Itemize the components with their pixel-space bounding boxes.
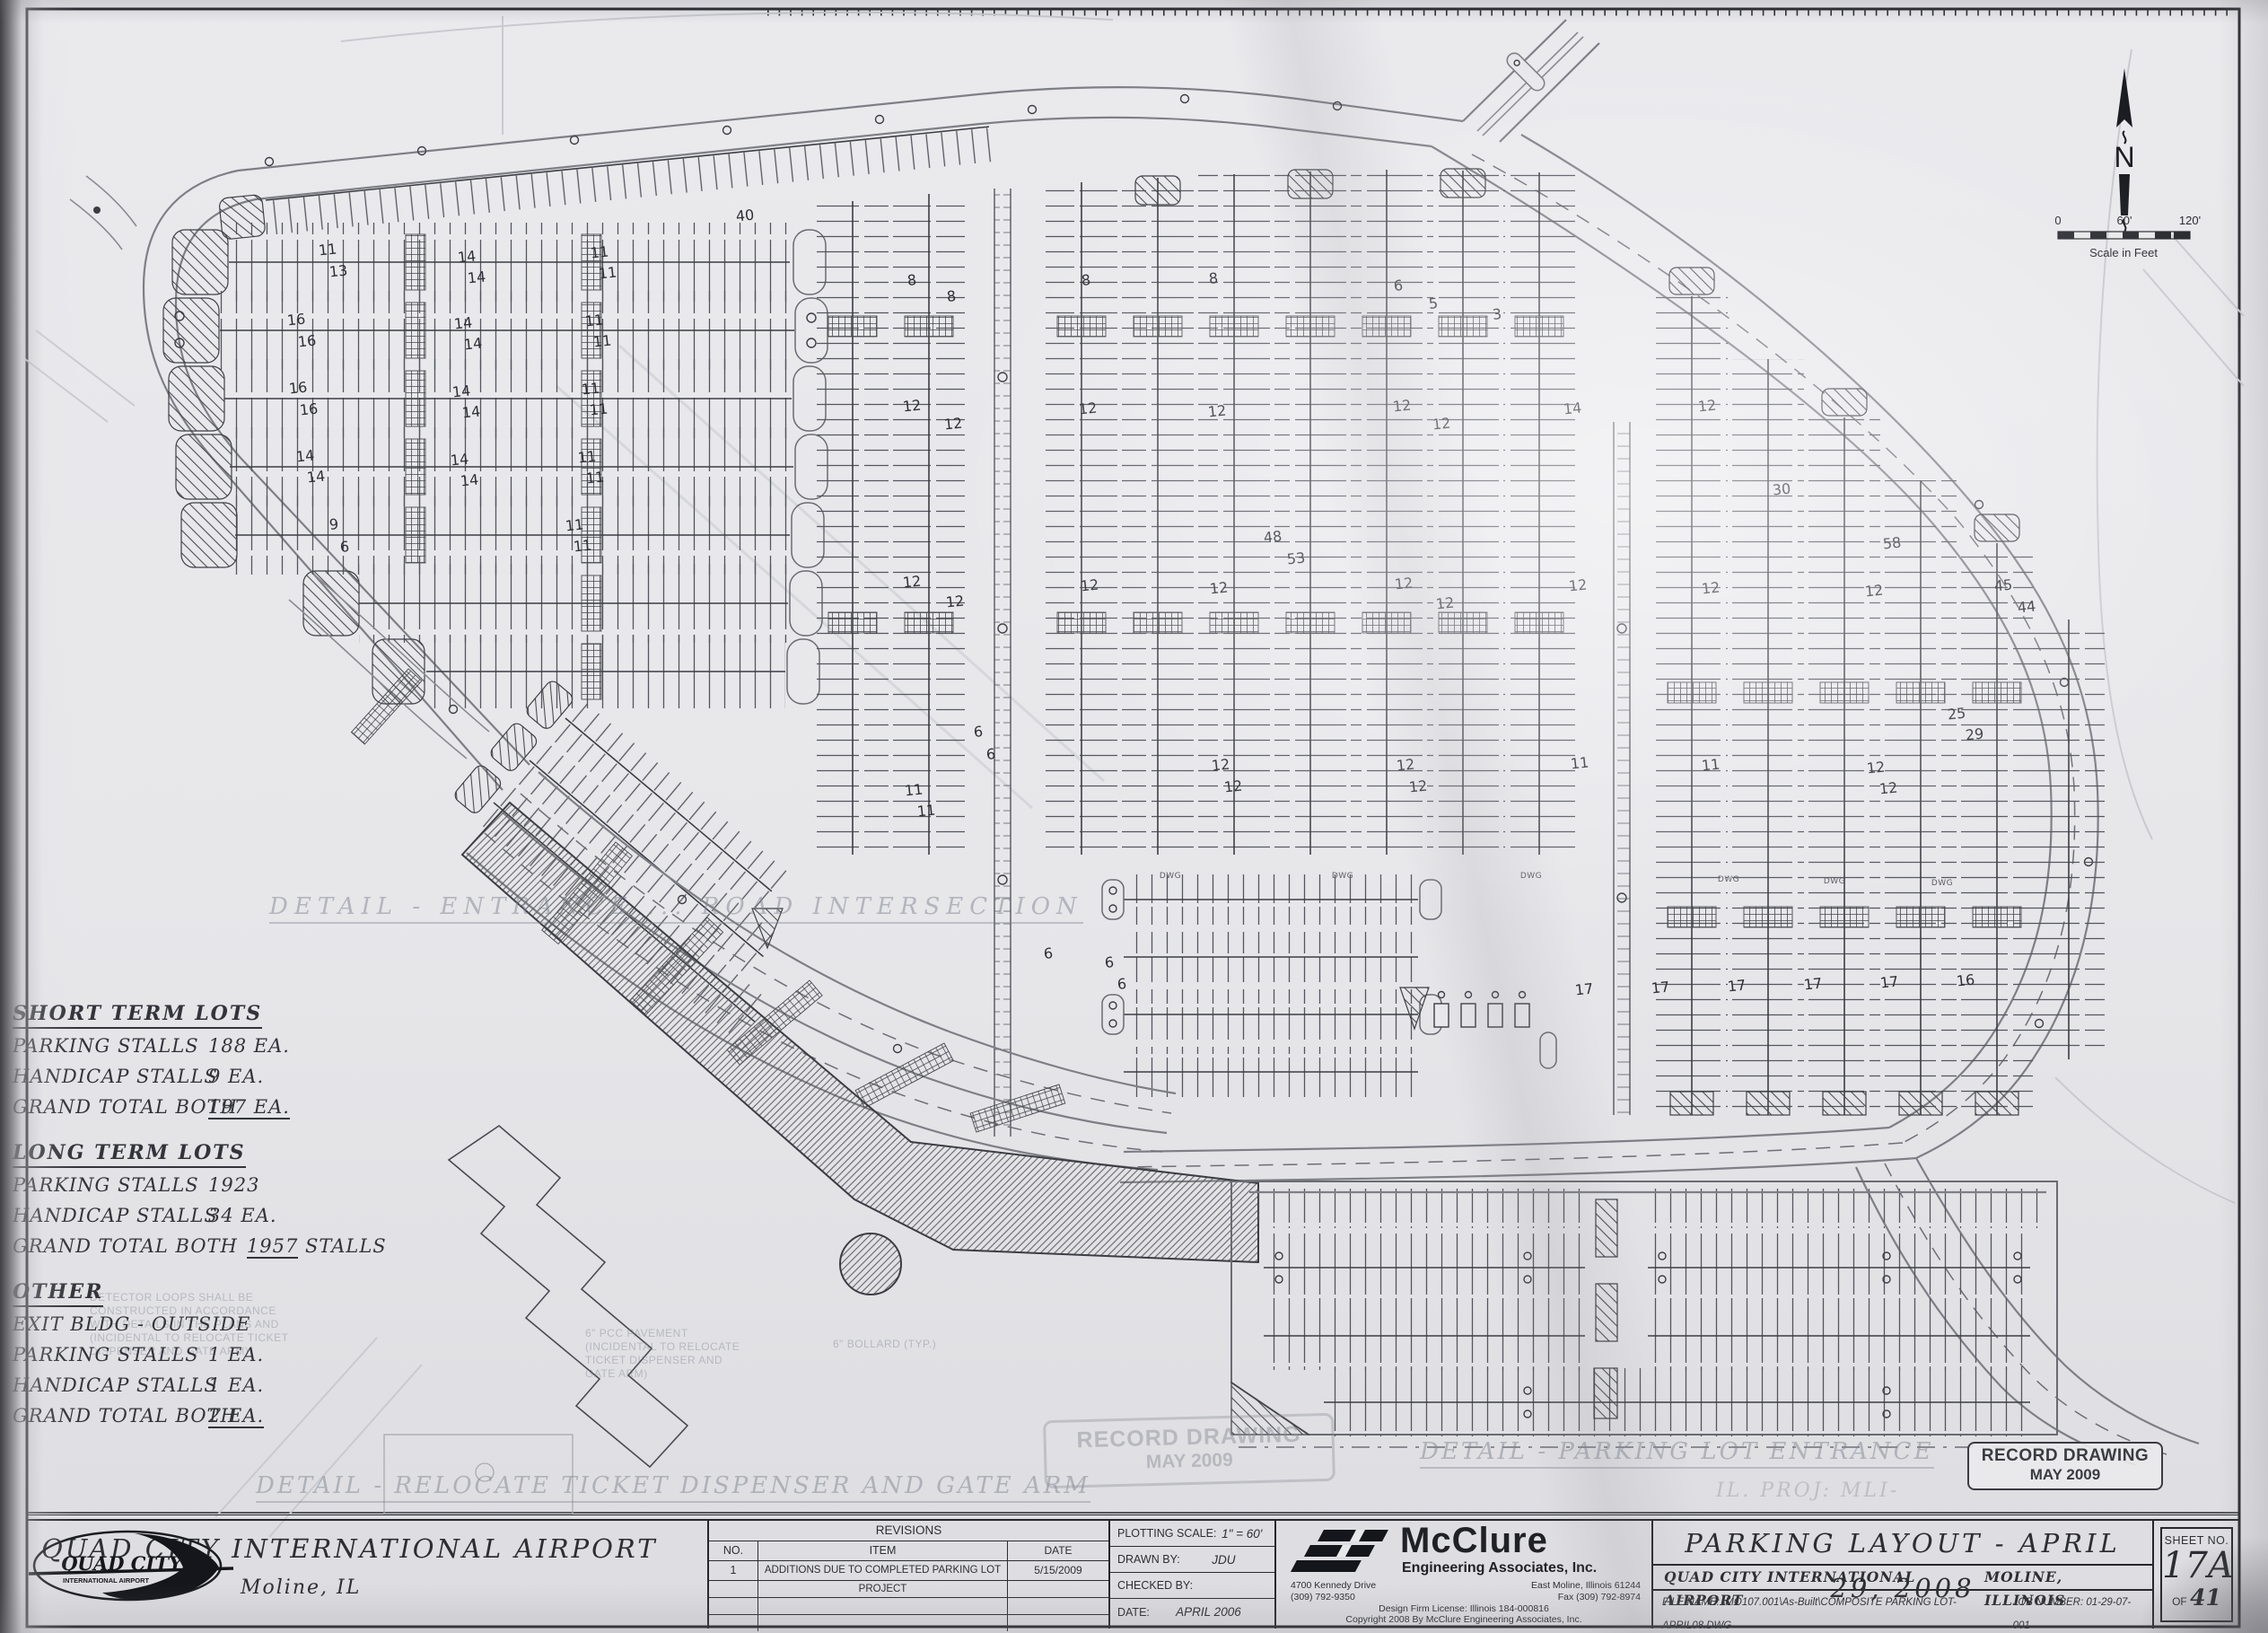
mid-lot-rows: [1102, 874, 1441, 1097]
stat-row: GRAND TOTAL BOTH197 EA.: [13, 1096, 398, 1127]
detail-label-intersection: DETAIL - ENTRANCE ... ROAD INTERSECTION: [269, 893, 1083, 924]
scale-tick-0: 0: [2054, 214, 2061, 227]
owner-section: QUAD CITY INTERNATIONAL AIRPORT Moline, …: [27, 1521, 707, 1629]
file-job-row: FILE NAME: \MO107.001\As-Built\COMPOSITE…: [1653, 1591, 2152, 1614]
detail-label-lot-entrance: DETAIL - PARKING LOT ENTRANCE: [1420, 1438, 1934, 1469]
date-row: DATE:APRIL 2006: [1110, 1599, 1274, 1625]
ghost-note-bollard: 6" BOLLARD (TYP.): [833, 1338, 936, 1351]
drawing-title: PARKING LAYOUT - APRIL 29, 2008: [1653, 1521, 2152, 1566]
stat-row: GRAND TOTAL BOTH2 EA.: [13, 1405, 398, 1435]
north-arrow: N: [2114, 68, 2134, 232]
revision-row-empty: [709, 1597, 1108, 1614]
firm-address-right: East Moline, Illinois 61244Fax (309) 792…: [1531, 1580, 1641, 1602]
stat-row: GRAND TOTAL BOTH1957 STALLS: [13, 1235, 398, 1266]
firm-name: McClure: [1400, 1521, 1548, 1561]
detail-label-ticket-dispenser: DETAIL - RELOCATE TICKET DISPENSER AND G…: [256, 1472, 1090, 1503]
revisions-section: REVISIONS NO. ITEM DATE 1 ADDITIONS DUE …: [707, 1521, 1108, 1629]
record-drawing-stamp-ghost: RECORD DRAWING MAY 2009: [1043, 1413, 1335, 1488]
firm-license: Design Firm License: Illinois 184-000816: [1276, 1603, 1651, 1614]
drawn-by-row: DRAWN BY:JDU: [1110, 1547, 1274, 1573]
toll-plaza: [1400, 988, 1556, 1068]
stat-row: PARKING STALLS1923: [13, 1174, 398, 1205]
revision-row-empty: [709, 1580, 1108, 1597]
north-label: N: [2114, 141, 2134, 173]
revisions-title: REVISIONS: [709, 1521, 1108, 1541]
title-block: QUAD CITY INTERNATIONAL AIRPORT Moline, …: [27, 1519, 2239, 1629]
plotting-section: PLOTTING SCALE:1" = 60' DRAWN BY:JDU CHE…: [1108, 1521, 1274, 1629]
pedestrian-walkway-2: [1614, 422, 1630, 1115]
pedestrian-walkway: [994, 189, 1011, 1137]
quad-city-logo: QUAD CITY INTERNATIONAL AIRPORT: [27, 1528, 235, 1603]
engineer-section: McClure Engineering Associates, Inc. 470…: [1274, 1521, 1651, 1629]
mcclure-logo-icon: [1285, 1528, 1395, 1578]
checked-by-row: CHECKED BY:: [1110, 1573, 1274, 1599]
revision-row: 1 ADDITIONS DUE TO COMPLETED PARKING LOT…: [709, 1560, 1108, 1580]
stat-row: EXIT BLDG - OUTSIDE: [13, 1313, 398, 1344]
scanned-plan-photo: N 0 60' 120' Scale in Feet SHORT TERM LO…: [0, 0, 2268, 1633]
scale-caption: Scale in Feet: [2089, 246, 2158, 259]
plotting-scale-row: PLOTTING SCALE:1" = 60': [1110, 1521, 1274, 1547]
stat-row: PARKING STALLS188 EA.: [13, 1035, 398, 1066]
other-heading: OTHER: [13, 1280, 398, 1304]
revisions-header: NO. ITEM DATE: [709, 1541, 1108, 1560]
drawing-subtitle-row: QUAD CITY INTERNATIONAL AIRPORT MOLINE, …: [1653, 1566, 2152, 1591]
sheet-number-section: SHEET NO. 17A OF 41: [2152, 1521, 2239, 1629]
long-term-lot-columns: [817, 169, 2105, 1137]
stat-row: HANDICAP STALLS9 EA.: [13, 1066, 398, 1096]
overflow-lot: [1231, 1181, 2057, 1436]
logo-line2: INTERNATIONAL AIRPORT: [63, 1576, 150, 1585]
stat-row: HANDICAP STALLS1 EA.: [13, 1374, 398, 1405]
revision-row-empty: [709, 1614, 1108, 1631]
record-drawing-stamp: RECORD DRAWING MAY 2009: [1967, 1442, 2163, 1490]
scale-tick-60: 60': [2117, 214, 2132, 227]
stall-statistics: SHORT TERM LOTS PARKING STALLS188 EA. HA…: [13, 1002, 398, 1435]
plan-sheet: N 0 60' 120' Scale in Feet SHORT TERM LO…: [0, 0, 2268, 1633]
sheet-number: 17A: [2162, 1547, 2231, 1585]
firm-subname: Engineering Associates, Inc.: [1402, 1560, 1597, 1576]
logo-line1: QUAD CITY: [61, 1552, 184, 1575]
short-term-heading: SHORT TERM LOTS: [13, 1002, 398, 1025]
firm-copyright: Copyright 2008 By McClure Engineering As…: [1276, 1614, 1651, 1625]
stat-row: PARKING STALLS1 EA.: [13, 1344, 398, 1374]
project-number-ghost: IL. PROJ: MLI-: [1716, 1479, 1899, 1502]
sheet-of: OF 41: [2162, 1585, 2231, 1611]
long-term-heading: LONG TERM LOTS: [13, 1141, 398, 1164]
scale-bar: 0 60' 120' Scale in Feet: [2054, 214, 2201, 259]
firm-address-left: 4700 Kennedy Drive(309) 792-9350: [1291, 1580, 1376, 1602]
drawing-title-section: PARKING LAYOUT - APRIL 29, 2008 QUAD CIT…: [1651, 1521, 2152, 1629]
owner-city: Moline, IL: [241, 1576, 361, 1599]
scale-tick-120: 120': [2179, 214, 2201, 227]
stat-row: HANDICAP STALLS34 EA.: [13, 1205, 398, 1235]
ghost-note-pavement: 6" PCC PAVEMENT(INCIDENTAL TO RELOCATE T…: [585, 1327, 740, 1381]
